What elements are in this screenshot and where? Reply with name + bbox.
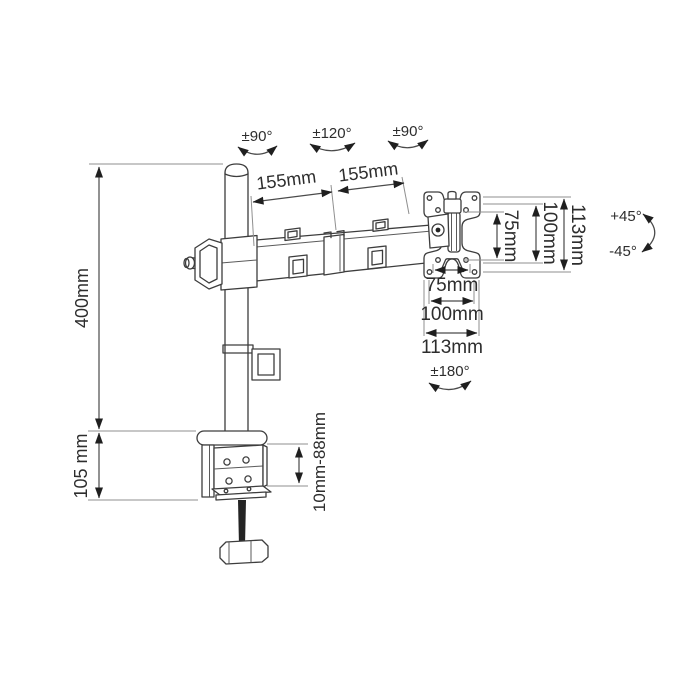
pole-height-label: 400mm [72,268,92,328]
desk-clamp [197,431,271,564]
arm-segment-2-label: 155mm [337,158,399,185]
arm-segment-1-label: 155mm [255,166,317,193]
rotation-tilt: +45° -45° [609,208,655,260]
arm-bottom-clip-2 [368,246,386,269]
pole [225,164,248,433]
arm-end-joint [428,214,449,248]
rotation-vesa-rotate: ±180° [429,363,471,390]
pole-collar [184,236,257,291]
tilt-up-label: +45° [610,208,641,225]
collar-bolt [184,257,195,269]
rotation-elbow-swivel: ±120° [310,125,355,151]
dim-vesa-vertical: 75mm 100mm 113mm [463,197,588,272]
collar-hex-plate [195,239,222,289]
dim-vesa-horizontal: 75mm 100mm 113mm [420,264,483,358]
vesa-rotate-arc [429,381,471,390]
clamp-lower-pad [212,486,271,500]
vesa-rotate-label: ±180° [430,363,469,380]
vesa-vertical-outer-label: 100mm [539,201,560,264]
vesa-horizontal-outer-label: 100mm [420,304,483,325]
clamp-range-label: 10mm-88mm [310,412,329,512]
pole-swivel-label: ±90° [242,128,273,145]
tilt-down-label: -45° [609,243,637,260]
vesa-vertical-inner-label: 75mm [500,210,521,263]
rotation-pole-swivel: ±90° [238,128,277,154]
pole-cable-clip [223,345,280,380]
arm-top-hook-2 [373,219,388,231]
diagram-canvas: 400mm 105 mm 10mm-88mm 155mm 155mm ±90° … [0,0,700,700]
rotation-head-swivel: ±90° [388,123,428,148]
arm-mid-joint [324,231,344,275]
tilt-arc [642,214,655,252]
vesa-horizontal-plate-label: 113mm [421,337,483,358]
clamp-height-label: 105 mm [71,433,91,498]
elbow-swivel-arc [310,143,355,151]
vesa-horizontal-inner-label: 75mm [426,275,479,296]
hinge-top-bolt [448,192,456,200]
vesa-vertical-plate-label: 113mm [567,204,588,266]
clamp-knob [220,540,268,564]
vesa-head [424,192,480,279]
dim-pole-height: 400mm [72,164,223,431]
clamp-screw [238,500,246,546]
dim-clamp-height: 105 mm [71,433,198,500]
hinge-top-bracket [444,199,461,213]
monitor-arm-dimension-diagram: 400mm 105 mm 10mm-88mm 155mm 155mm ±90° … [0,0,700,700]
arm-top-hook-1 [285,228,300,241]
arm [256,219,445,281]
clamp-top-plate [197,431,267,445]
head-swivel-label: ±90° [393,123,424,140]
arm-bottom-clip-1 [289,255,307,278]
head-swivel-arc [388,140,428,148]
elbow-swivel-label: ±120° [312,125,351,142]
dim-clamp-range: 10mm-88mm [267,412,329,512]
pole-swivel-arc [238,146,277,154]
